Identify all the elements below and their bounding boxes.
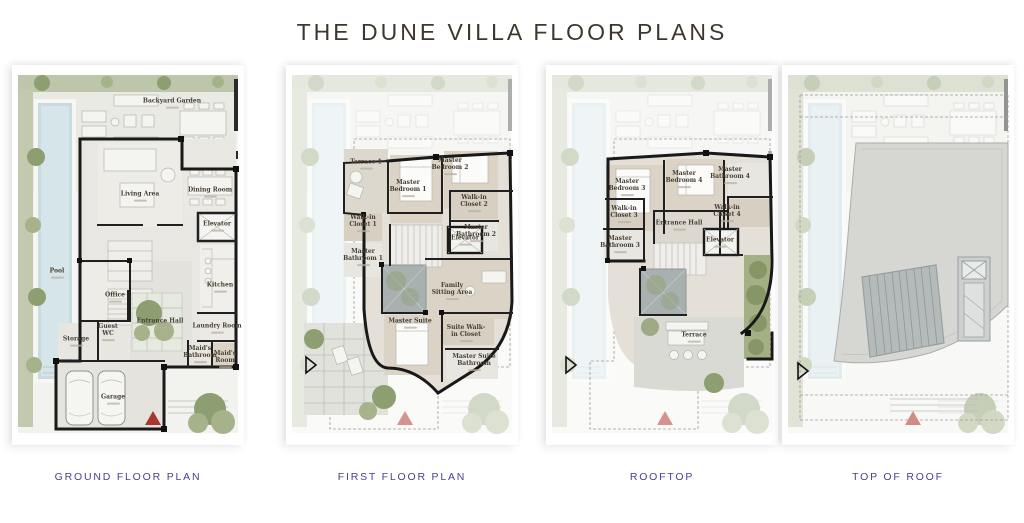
caption-rooftop: ROOFTOP [546, 471, 778, 483]
caption-first-floor-plan: FIRST FLOOR PLAN [286, 471, 518, 483]
ground-floor-svg [12, 65, 244, 445]
caption-top-of-roof: TOP OF ROOF [782, 471, 1014, 483]
rooftop-svg [546, 65, 778, 445]
skylight [862, 265, 944, 357]
stairs [390, 225, 442, 267]
rooftop-panel: Master Bedroom 3 Master Bedroom 4 Master… [546, 65, 778, 445]
top-of-roof-panel [782, 65, 1014, 445]
courtyard [132, 293, 182, 351]
ground-floor-panel: Backyard Garden Pool Living Area Dining … [12, 65, 244, 445]
caption-ground-floor-plan: GROUND FLOOR PLAN [12, 471, 244, 483]
elevator-overrun [958, 257, 990, 341]
planter-strip [744, 255, 770, 359]
first-floor-panel: Terrace 1 Master Bedroom 1 Master Bedroo… [286, 65, 518, 445]
elevator-shaft [448, 227, 482, 253]
rooftop-terrace [634, 317, 744, 393]
top-of-roof-svg [782, 65, 1014, 445]
floor-plans-page: { "title": "THE DUNE VILLA FLOOR PLANS",… [0, 0, 1024, 523]
courtyard-void [382, 265, 426, 313]
first-floor-svg [286, 65, 518, 445]
elevator-shaft [198, 213, 236, 241]
page-title: THE DUNE VILLA FLOOR PLANS [0, 19, 1024, 46]
courtyard-void [640, 269, 686, 315]
